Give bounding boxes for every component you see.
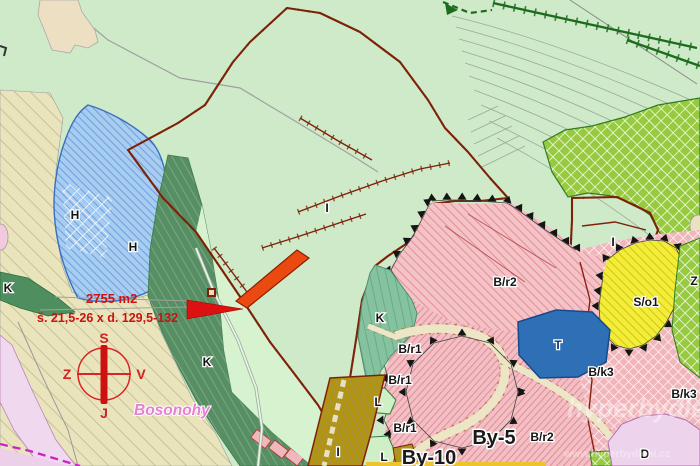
zone-label: L [374,395,381,409]
zone-label: B/r1 [388,373,412,387]
dimensions-annotation: š. 21,5-26 x d. 129,5-132 [37,311,178,325]
parcel-marker [208,289,215,296]
zone-label: By-10 [402,447,456,466]
zone-label: L [380,450,387,464]
compass-south-label: J [100,405,108,421]
zone-label: K [376,311,385,325]
zone-label: I [325,201,328,215]
zone-label: By-5 [472,427,515,449]
compass-east-label: V [136,366,146,382]
zone-label: B/r2 [493,275,517,289]
zone-label: H [71,208,80,222]
map-canvas[interactable]: 2755 m2 š. 21,5-26 x d. 129,5-132 S V J … [0,0,700,466]
zone-label: K [203,355,212,369]
compass-north-label: S [99,330,108,346]
zone-label: T [554,338,562,352]
zone-label: K [4,281,13,295]
zone-label: Z [690,274,697,288]
watermark-url: www.hyperbydleni.cz [563,448,670,460]
zone-label: I [611,235,614,249]
map-viewport: 2755 m2 š. 21,5-26 x d. 129,5-132 S V J … [0,0,700,466]
zone-label: B/r2 [530,430,554,444]
zone-label: B/r1 [398,342,422,356]
zone-label: I [336,445,339,459]
watermark-brand: hyperbydlení [567,393,700,423]
area-annotation: 2755 m2 [86,291,137,306]
zone-label: B/k3 [588,365,614,379]
place-label: Bosonohy [134,402,211,419]
compass-west-label: Z [63,366,72,382]
zone-label: H [129,240,138,254]
zone-label: B/r1 [393,421,417,435]
zone-label: S/o1 [633,295,659,309]
